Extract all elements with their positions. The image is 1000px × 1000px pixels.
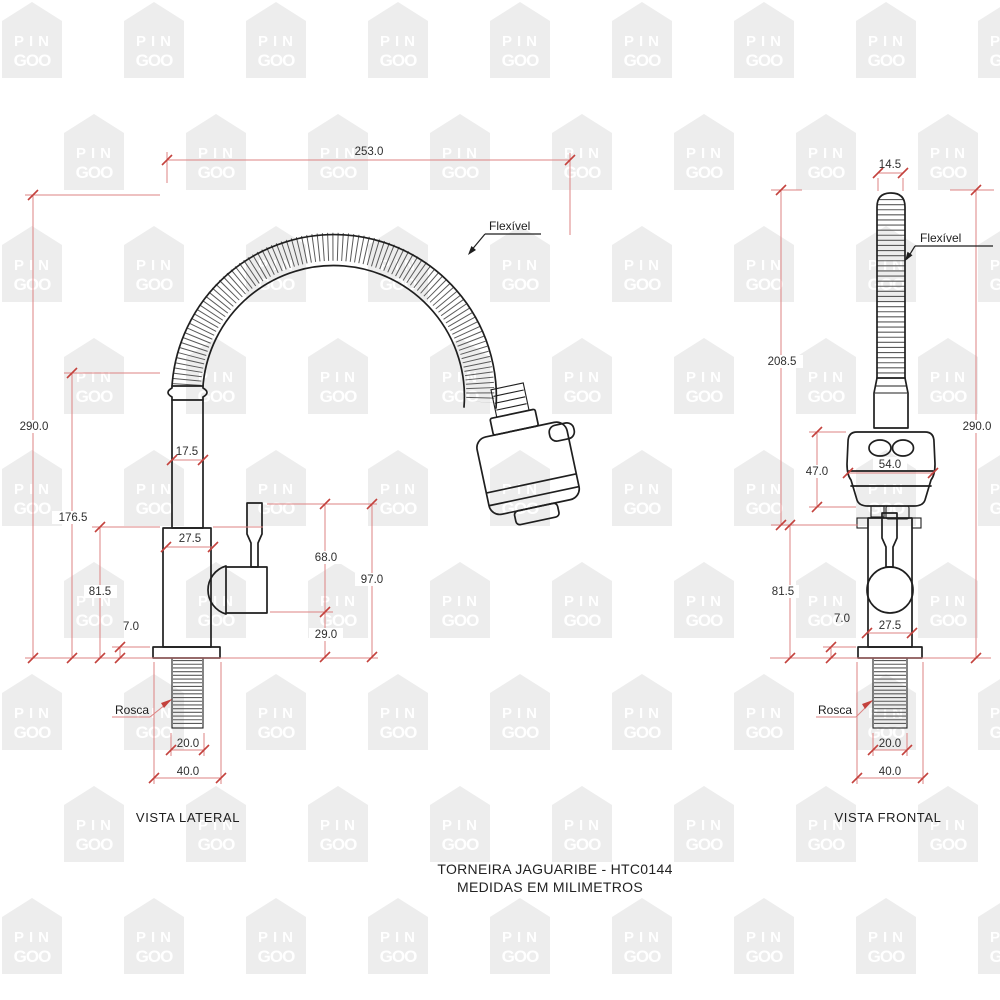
dim-total-width: 253.0 <box>355 146 384 158</box>
faucet-technical-drawing: PIN GOO <box>0 0 1000 1000</box>
dim-base-width: 40.0 <box>879 766 901 778</box>
label-thread: Rosca <box>818 703 852 717</box>
watermark-pattern <box>2 2 1000 974</box>
drawing-title: TORNEIRA JAGUARIBE - HTC0144 <box>437 861 672 877</box>
dim-handle-total-drop: 97.0 <box>361 574 383 586</box>
dim-spray-head-width: 54.0 <box>879 459 901 471</box>
dim-base-width: 40.0 <box>177 766 199 778</box>
drawing-subtitle: MEDIDAS EM MILIMETROS <box>457 879 643 895</box>
dim-thread-width: 20.0 <box>879 738 901 750</box>
base-flange <box>858 647 922 658</box>
label-flexible-hose: Flexível <box>920 231 961 245</box>
dim-body-width: 27.5 <box>179 533 201 545</box>
dim-handle-base-offset: 29.0 <box>315 629 337 641</box>
label-thread: Rosca <box>115 703 149 717</box>
lateral-view-title: VISTA LATERAL <box>136 810 240 825</box>
dim-handle-drop: 68.0 <box>315 552 337 564</box>
dim-body-width: 27.5 <box>879 620 901 632</box>
dim-base-thickness: 7.0 <box>834 613 850 625</box>
flexible-leader-arrow <box>468 246 476 255</box>
dim-hose-connection-height: 176.5 <box>59 512 88 524</box>
dim-body-height: 81.5 <box>89 586 111 598</box>
dim-hose-section-height: 208.5 <box>768 356 797 368</box>
title-block: TORNEIRA JAGUARIBE - HTC0144 MEDIDAS EM … <box>437 861 672 895</box>
spray-head-button <box>548 422 576 443</box>
handle-ball <box>867 567 913 613</box>
technical-drawing-page: PIN GOO <box>0 0 1000 1000</box>
label-flexible-hose: Flexível <box>489 219 530 233</box>
spray-head-button-right <box>893 440 914 456</box>
dim-hose-width: 14.5 <box>879 159 901 171</box>
frontal-view-title: VISTA FRONTAL <box>834 810 941 825</box>
dim-total-height: 290.0 <box>20 421 49 433</box>
dim-base-thickness: 7.0 <box>123 621 139 633</box>
spray-head-button-left <box>869 440 891 456</box>
dim-total-height: 290.0 <box>963 421 992 433</box>
dim-spray-head-height: 47.0 <box>806 466 828 478</box>
base-flange <box>153 647 220 658</box>
dim-pipe-width: 17.5 <box>176 446 198 458</box>
dim-body-height: 81.5 <box>772 586 794 598</box>
dim-thread-width: 20.0 <box>177 738 199 750</box>
